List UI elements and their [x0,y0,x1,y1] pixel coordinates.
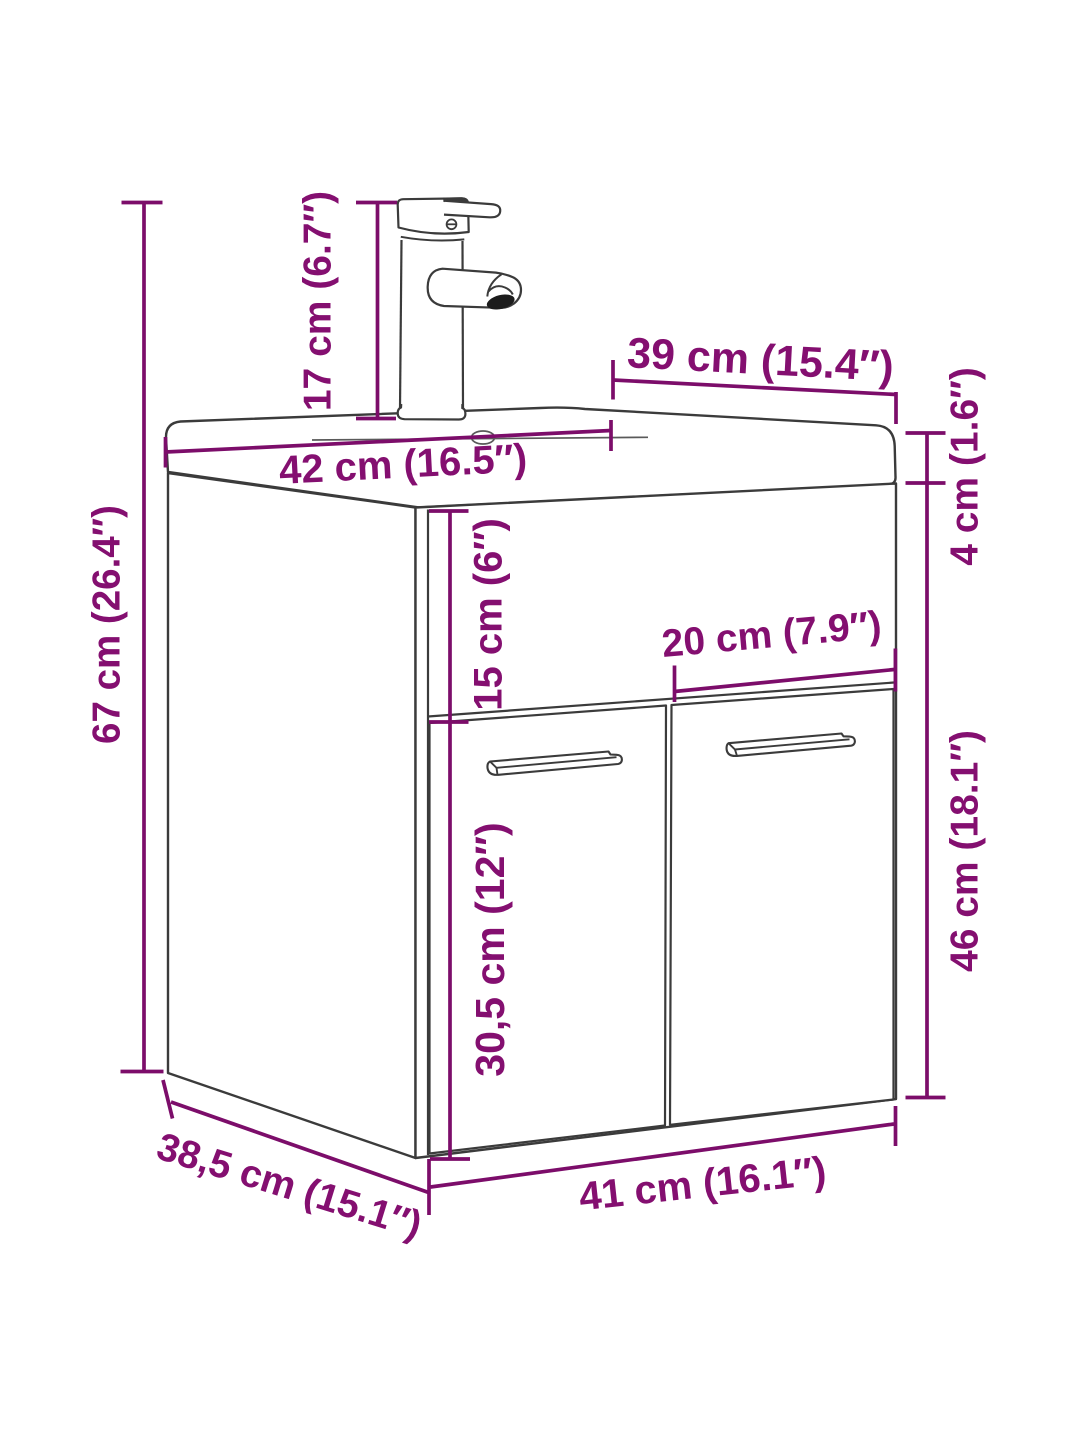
svg-text:15 cm (6″): 15 cm (6″) [467,518,511,711]
svg-text:4 cm (1.6″): 4 cm (1.6″) [943,367,986,566]
svg-text:46 cm (18.1″): 46 cm (18.1″) [943,730,986,972]
svg-text:17 cm (6.7″): 17 cm (6.7″) [296,191,339,411]
svg-text:67 cm (26.4″): 67 cm (26.4″) [86,505,129,744]
svg-text:30,5 cm (12″): 30,5 cm (12″) [467,822,513,1076]
